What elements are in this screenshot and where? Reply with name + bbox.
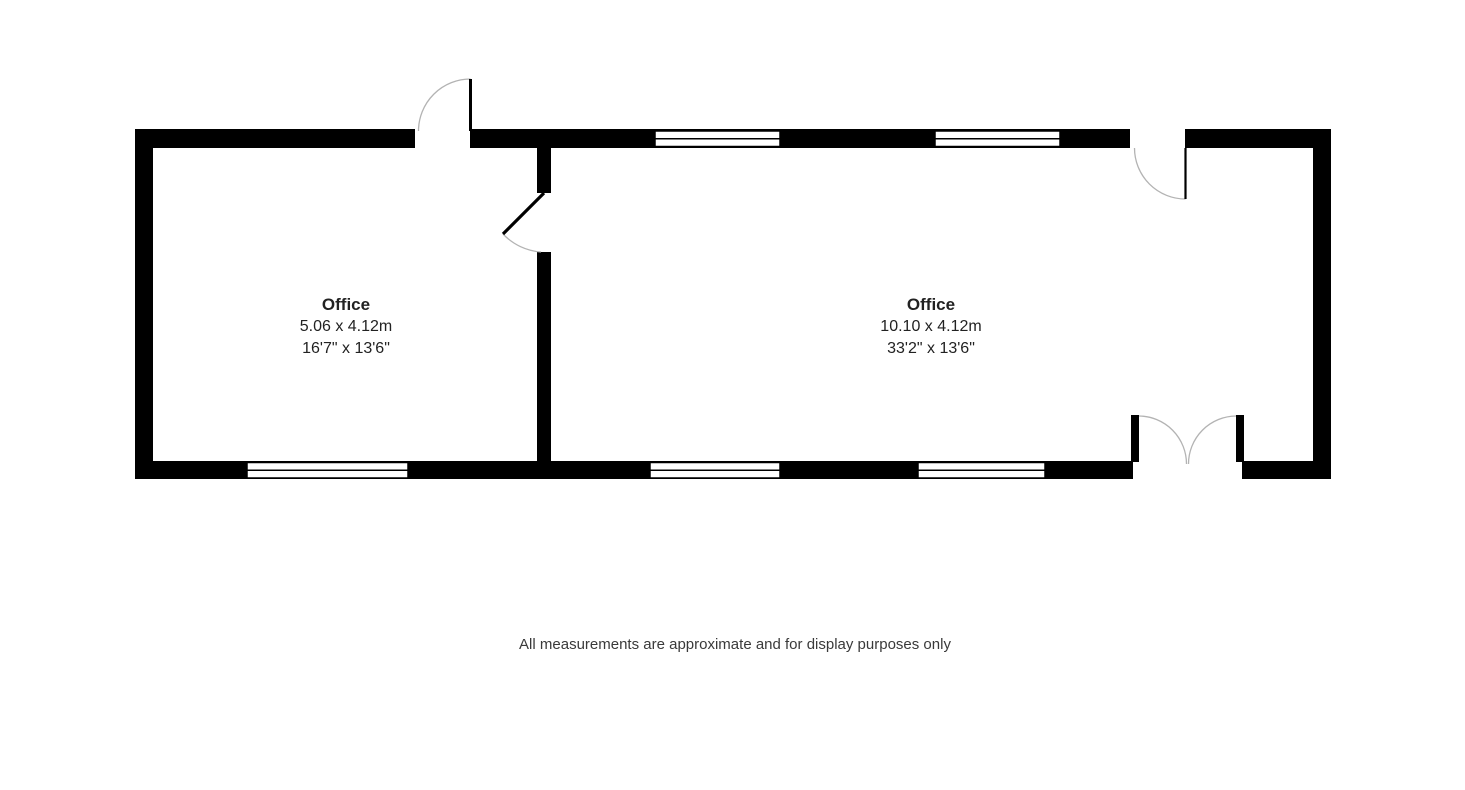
window-bottom-1 [247,463,408,479]
wall-top-right-segment [1185,129,1331,148]
door-swing-arc-right [1189,416,1237,464]
room-dimension-metric: 10.10 x 4.12m [880,316,981,338]
window-bottom-3 [918,463,1045,479]
wall-right [1313,129,1331,479]
room-dimension-imperial: 33'2" x 13'6" [880,338,981,360]
window-top-2 [935,131,1060,147]
door-swing-arc [419,79,471,131]
door-double-bottom [1131,415,1244,464]
disclaimer-text: All measurements are approximate and for… [519,636,951,653]
door-swing-arc-left [1139,416,1187,464]
room-label-office-right: Office 10.10 x 4.12m 33'2" x 13'6" [880,294,981,360]
room-name: Office [300,294,393,316]
door-leaf [503,193,544,234]
room-dimension-metric: 5.06 x 4.12m [300,316,393,338]
door-top-left [419,79,471,131]
window-bottom-2 [650,463,780,479]
door-internal [503,193,544,252]
door-leaf-left [1131,415,1139,462]
wall-left [135,129,153,479]
door-swing-arc [503,234,541,252]
room-label-office-left: Office 5.06 x 4.12m 16'7" x 13'6" [300,294,393,360]
partition-lower-segment [537,252,551,462]
floorplan-canvas: Office 5.06 x 4.12m 16'7" x 13'6" Office… [0,0,1465,790]
room-dimension-imperial: 16'7" x 13'6" [300,338,393,360]
door-leaf-right [1236,415,1244,462]
door-top-right [1135,148,1186,199]
partition-upper-segment [537,147,551,193]
window-top-1 [655,131,780,147]
wall-top-left-segment [135,129,415,148]
door-swing-arc [1135,148,1186,199]
floorplan-drawing [0,0,1465,790]
room-name: Office [880,294,981,316]
